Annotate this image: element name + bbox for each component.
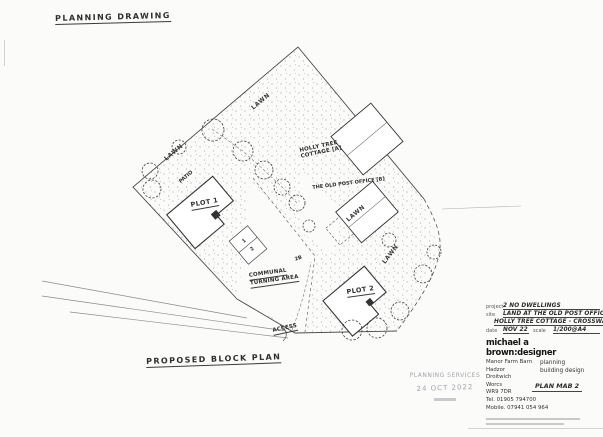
project-value: 2 NO DWELLINGS xyxy=(503,303,600,310)
address-line: Droitwich xyxy=(486,374,548,382)
designer-services: planning building design xyxy=(540,359,584,375)
service-line: building design xyxy=(540,367,584,375)
site-value-line1: LAND AT THE OLD POST OFFICE/ xyxy=(503,311,603,318)
title-block: project 2 NO DWELLINGS site LAND AT THE … xyxy=(486,303,600,425)
plan-reference: PLAN MAB 2 xyxy=(532,382,582,392)
scale-value: 1/200@A4 xyxy=(553,327,600,334)
scale-label: scale xyxy=(533,328,553,334)
fine-print-line xyxy=(486,423,564,425)
date-label: date xyxy=(486,328,503,334)
stamp-smudge xyxy=(434,398,456,401)
service-line: planning xyxy=(540,359,584,367)
stamp-title: PLANNING SERVICES xyxy=(403,372,487,379)
date-value: NOV 22 xyxy=(503,327,529,334)
designer-name: michael a brown:designer xyxy=(486,337,600,357)
site-label: site xyxy=(486,312,503,318)
project-label: project xyxy=(486,304,503,310)
scan-artifact-left-margin xyxy=(4,40,5,66)
address-line: Mobile. 07941 054 964 xyxy=(486,405,548,413)
address-line: Tel. 01905 794700 xyxy=(486,397,548,405)
planning-services-stamp: PLANNING SERVICES 24 OCT 2022 xyxy=(403,372,487,401)
scanned-block-plan-sheet: PLANNING DRAWING PROPOSED BLOCK PLAN PLO… xyxy=(0,0,603,437)
site-value-line2: HOLLY TREE COTTAGE - CROSSWAY GRN xyxy=(494,319,603,326)
scan-artifact-bottom-line xyxy=(468,428,603,429)
stamp-date: 24 OCT 2022 xyxy=(403,383,487,394)
address-line: Manor Farm Barn xyxy=(486,359,548,367)
fine-print-line xyxy=(486,418,580,420)
address-line: Hadzor xyxy=(486,367,548,375)
